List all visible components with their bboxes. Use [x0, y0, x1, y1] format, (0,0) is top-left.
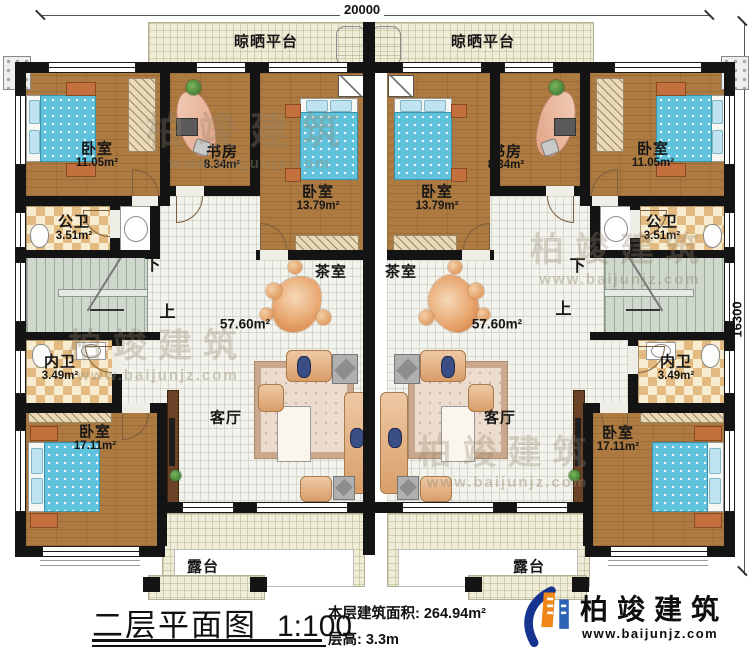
label-bedroom-top-right: 卧室	[637, 138, 669, 159]
door-opening	[110, 210, 120, 238]
label-stairs-down-left: 下	[144, 251, 161, 275]
door-opening	[630, 210, 640, 238]
label-tea-room-left: 茶室	[315, 261, 347, 282]
label-public-bath-right: 公卫	[646, 211, 678, 232]
window	[724, 430, 735, 512]
window	[268, 62, 348, 73]
label-bedroom-mid-right: 卧室	[421, 181, 453, 202]
area-bedroom-bottom-left: 17.11m²	[74, 440, 116, 452]
side-table	[332, 354, 358, 384]
door-opening	[600, 403, 628, 413]
dimension-tick	[737, 566, 747, 576]
potted-plant	[569, 470, 580, 481]
dimension-height-label: 16300	[730, 286, 745, 354]
label-drying-platform-right: 晾晒平台	[451, 31, 515, 52]
door-opening	[462, 250, 490, 260]
tv	[575, 418, 581, 466]
label-bedroom-mid-left: 卧室	[302, 181, 334, 202]
door-opening	[112, 346, 122, 374]
bed-pillow	[31, 448, 43, 474]
area-hall-left: 57.60m²	[220, 317, 270, 332]
label-bedroom-bottom-right: 卧室	[602, 422, 634, 443]
side-table	[397, 476, 419, 500]
bed-pillow	[712, 130, 723, 154]
side-table	[333, 476, 355, 500]
label-drying-platform-left: 晾晒平台	[234, 31, 298, 52]
window	[15, 95, 26, 165]
potted-plant	[186, 80, 201, 95]
label-inner-bath-right: 内卫	[660, 351, 692, 372]
wall	[580, 62, 590, 202]
area-study-left: 8.34m²	[204, 159, 240, 171]
window-sill	[40, 560, 140, 566]
wall	[157, 403, 167, 546]
pillar	[143, 577, 160, 592]
dimension-tick	[737, 16, 747, 26]
label-tea-room-right: 茶室	[385, 261, 417, 282]
coffee-table	[441, 406, 475, 462]
toilet	[30, 224, 49, 248]
armchair	[420, 476, 452, 502]
pillar	[250, 577, 267, 592]
window	[724, 350, 735, 394]
person-figure	[441, 356, 455, 378]
window-sill	[608, 560, 708, 566]
bed	[300, 112, 358, 180]
sink-basin	[124, 216, 148, 242]
window	[610, 546, 708, 557]
tea-stool	[419, 310, 434, 325]
title-underline	[92, 639, 322, 642]
toilet	[703, 224, 722, 248]
area-hall-right: 57.60m²	[472, 317, 522, 332]
bed	[652, 442, 708, 512]
brand-url: www.baijunjz.com	[582, 626, 718, 641]
label-inner-bath-left: 内卫	[44, 351, 76, 372]
nightstand	[656, 82, 686, 96]
bed-pillow	[330, 100, 352, 112]
window	[614, 62, 702, 73]
window	[402, 502, 494, 513]
water-heater	[371, 26, 401, 66]
pillar	[465, 577, 482, 592]
label-living-right: 客厅	[484, 407, 516, 428]
potted-plant	[170, 470, 181, 481]
bed-pillow	[306, 100, 328, 112]
area-bedroom-bottom-right: 17.11m²	[597, 441, 639, 453]
floorplan-canvas: 20000 16300	[0, 0, 750, 658]
area-bedroom-mid-right: 13.79m²	[416, 200, 459, 212]
bed-pillow	[29, 130, 40, 154]
label-stairs-up-left: 上	[159, 298, 176, 322]
tea-stool	[468, 283, 484, 299]
bed-pillow	[709, 478, 721, 504]
window	[724, 212, 735, 248]
window	[15, 430, 26, 512]
bed-pillow	[400, 100, 422, 112]
label-public-bath-left: 公卫	[58, 211, 90, 232]
wall	[160, 62, 170, 202]
wall	[590, 250, 735, 258]
window	[196, 62, 246, 73]
nightstand	[694, 426, 722, 441]
tea-stool	[448, 260, 462, 274]
brand-logo-icon	[522, 582, 574, 648]
tea-stool	[316, 310, 331, 325]
door-opening	[122, 403, 150, 413]
label-stairs-down-right: 下	[569, 252, 586, 276]
window	[256, 502, 348, 513]
area-study-right: 8.34m²	[488, 159, 524, 171]
label-bedroom-bottom-left: 卧室	[79, 421, 111, 442]
side-table	[394, 354, 420, 384]
nightstand	[66, 82, 96, 96]
window	[504, 62, 554, 73]
wardrobe	[596, 78, 624, 152]
area-bedroom-top-right: 11.05m²	[632, 157, 674, 169]
tea-stool	[266, 283, 282, 299]
bed	[394, 112, 452, 180]
wardrobe	[128, 78, 156, 152]
nightstand	[30, 426, 58, 441]
wall	[363, 513, 375, 555]
window	[15, 350, 26, 394]
door-opening	[628, 346, 638, 374]
stair-handrail	[58, 289, 148, 297]
door-opening	[546, 186, 574, 196]
window	[182, 502, 234, 513]
wall	[490, 186, 590, 196]
nightstand	[694, 513, 722, 528]
coffee-table	[277, 406, 311, 462]
water-heater	[336, 26, 366, 66]
bed-pillow	[424, 100, 446, 112]
wall-party	[363, 22, 375, 513]
nightstand	[451, 168, 467, 182]
area-inner-bath-left: 3.49m²	[42, 370, 78, 382]
potted-plant	[549, 80, 564, 95]
window	[724, 95, 735, 165]
wall	[250, 62, 260, 196]
window	[42, 546, 140, 557]
sink-basin	[604, 216, 628, 242]
nightstand	[285, 168, 301, 182]
area-public-bath-right: 3.51m²	[644, 230, 680, 242]
label-stairs-up-right: 上	[555, 295, 572, 319]
bed-pillow	[709, 448, 721, 474]
floor-height-note: 层高: 3.3m	[328, 628, 399, 649]
computer-monitor	[554, 118, 576, 136]
nightstand	[285, 104, 301, 118]
bed	[44, 442, 100, 512]
wall	[590, 332, 735, 340]
porch-left	[148, 575, 265, 600]
bed-pillow	[712, 100, 723, 124]
person-figure	[388, 428, 402, 448]
toilet	[701, 344, 720, 368]
window	[402, 62, 482, 73]
person-figure	[297, 356, 311, 378]
bed-pillow	[29, 100, 40, 124]
tea-stool	[288, 260, 302, 274]
window	[48, 62, 136, 73]
tv	[169, 418, 175, 466]
label-terrace-right: 露台	[513, 556, 545, 577]
label-living-left: 客厅	[210, 407, 242, 428]
area-public-bath-left: 3.51m²	[56, 230, 92, 242]
armchair	[300, 476, 332, 502]
area-bedroom-top-left: 11.05m²	[76, 157, 118, 169]
label-bedroom-top-left: 卧室	[81, 138, 113, 159]
wall	[490, 62, 500, 196]
person-figure	[350, 428, 364, 448]
stair-direction-arrow	[90, 309, 124, 311]
door-opening	[260, 250, 288, 260]
title-underline-thin	[92, 645, 326, 647]
computer-monitor	[176, 118, 198, 136]
dimension-width-label: 20000	[340, 2, 384, 17]
brand-logo: 柏竣建筑 www.baijunjz.com	[522, 582, 738, 652]
window	[15, 262, 26, 322]
nightstand	[451, 104, 467, 118]
area-bedroom-mid-left: 13.79m²	[297, 200, 340, 212]
door-opening	[176, 186, 204, 196]
stair-direction-arrow	[626, 309, 660, 311]
wall	[160, 186, 260, 196]
armchair	[258, 384, 284, 412]
brand-name: 柏竣建筑	[580, 588, 728, 628]
area-inner-bath-right: 3.49m²	[658, 370, 694, 382]
door-opening	[592, 196, 618, 206]
window	[15, 212, 26, 248]
nightstand	[30, 513, 58, 528]
building-area-note: 本层建筑面积: 264.94m²	[328, 602, 486, 623]
flue-shaft	[388, 75, 414, 97]
window	[516, 502, 568, 513]
wall	[15, 332, 160, 340]
wall	[583, 403, 593, 546]
door-opening	[132, 196, 158, 206]
label-terrace-left: 露台	[187, 556, 219, 577]
flue-shaft	[338, 75, 364, 97]
bed-pillow	[31, 478, 43, 504]
wall	[15, 250, 160, 258]
